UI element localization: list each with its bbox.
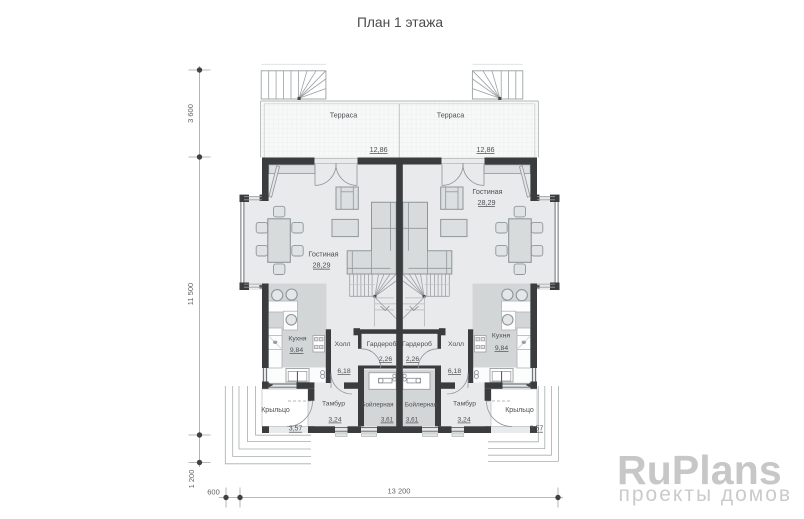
svg-text:План 1 этажа: План 1 этажа: [357, 15, 443, 30]
svg-text:Гостиная: Гостиная: [308, 250, 338, 259]
svg-text:Гардероб: Гардероб: [367, 340, 397, 348]
svg-text:Тамбур: Тамбур: [453, 400, 476, 408]
svg-text:600: 600: [207, 488, 220, 497]
svg-text:12,86: 12,86: [370, 145, 388, 154]
svg-text:2,26: 2,26: [406, 356, 419, 363]
svg-text:28,29: 28,29: [478, 198, 496, 207]
svg-text:9,84: 9,84: [495, 345, 508, 352]
svg-text:9,84: 9,84: [290, 347, 303, 354]
svg-text:3,24: 3,24: [328, 416, 341, 423]
svg-text:3,24: 3,24: [457, 416, 470, 423]
svg-text:6,18: 6,18: [448, 368, 461, 375]
svg-text:12,86: 12,86: [477, 145, 495, 154]
svg-text:Крыльцо: Крыльцо: [261, 407, 290, 414]
svg-text:Гостиная: Гостиная: [472, 187, 502, 196]
svg-text:Крыльцо: Крыльцо: [505, 407, 534, 414]
svg-text:3,57: 3,57: [530, 426, 544, 433]
svg-text:3,57: 3,57: [289, 426, 303, 433]
svg-text:проекты домов: проекты домов: [619, 483, 793, 506]
svg-text:Гардероб: Гардероб: [402, 340, 432, 348]
svg-text:Терраса: Терраса: [330, 110, 358, 119]
svg-text:Терраса: Терраса: [437, 110, 465, 119]
svg-text:Холл: Холл: [334, 341, 350, 348]
svg-text:6,18: 6,18: [337, 368, 350, 375]
svg-text:Бойлерная: Бойлерная: [361, 400, 393, 408]
svg-text:Кухня: Кухня: [492, 333, 511, 340]
svg-text:Тамбур: Тамбур: [322, 400, 345, 408]
svg-text:13 200: 13 200: [388, 487, 411, 496]
svg-text:Холл: Холл: [448, 341, 464, 348]
svg-text:3,61: 3,61: [381, 416, 394, 423]
svg-text:1 200: 1 200: [187, 470, 196, 489]
svg-text:11 500: 11 500: [186, 283, 195, 305]
svg-text:Бойлерная: Бойлерная: [405, 400, 437, 408]
svg-text:Кухня: Кухня: [288, 336, 307, 343]
svg-text:28,29: 28,29: [313, 261, 331, 270]
svg-text:2,26: 2,26: [379, 356, 392, 363]
svg-text:3 600: 3 600: [186, 104, 195, 123]
svg-text:3,61: 3,61: [406, 416, 419, 423]
